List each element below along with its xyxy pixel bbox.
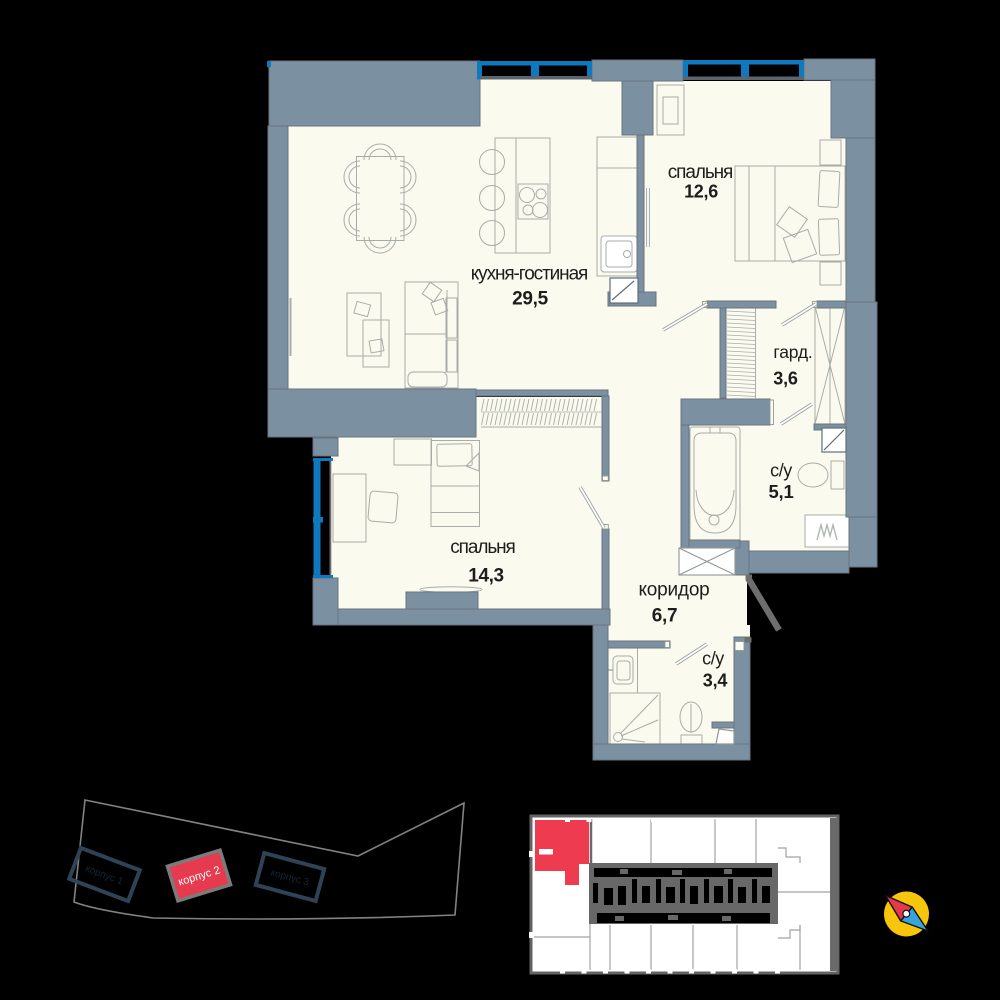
svg-text:6,7: 6,7	[652, 606, 678, 627]
svg-text:коридор: коридор	[638, 580, 709, 601]
svg-text:29,5: 29,5	[512, 289, 549, 310]
svg-text:гард.: гард.	[773, 342, 812, 362]
svg-text:с/у: с/у	[702, 649, 724, 669]
svg-text:спальня: спальня	[450, 537, 514, 558]
svg-text:спальня: спальня	[668, 162, 732, 183]
svg-text:5,1: 5,1	[768, 481, 793, 502]
svg-text:12,6: 12,6	[684, 182, 718, 202]
svg-text:3,6: 3,6	[773, 369, 798, 389]
svg-text:кухня-гостиная: кухня-гостиная	[471, 264, 587, 285]
svg-text:14,3: 14,3	[468, 566, 503, 587]
svg-text:с/у: с/у	[770, 461, 792, 481]
svg-text:3,4: 3,4	[703, 671, 728, 691]
